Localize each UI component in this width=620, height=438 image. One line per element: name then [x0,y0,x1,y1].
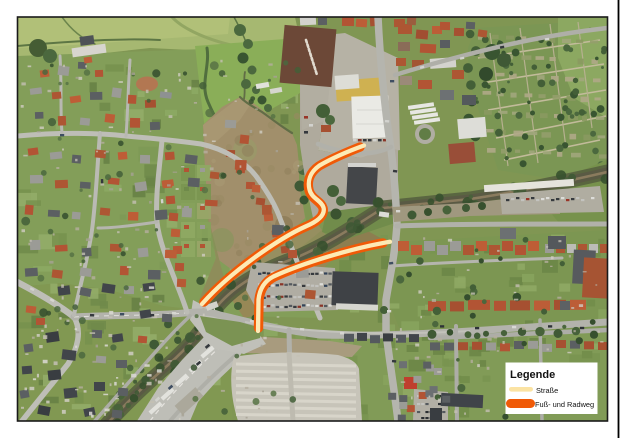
svg-text:Fuß- und Radweg: Fuß- und Radweg [535,400,594,409]
svg-text:Legende: Legende [510,369,555,381]
svg-text:Straße: Straße [536,386,558,395]
